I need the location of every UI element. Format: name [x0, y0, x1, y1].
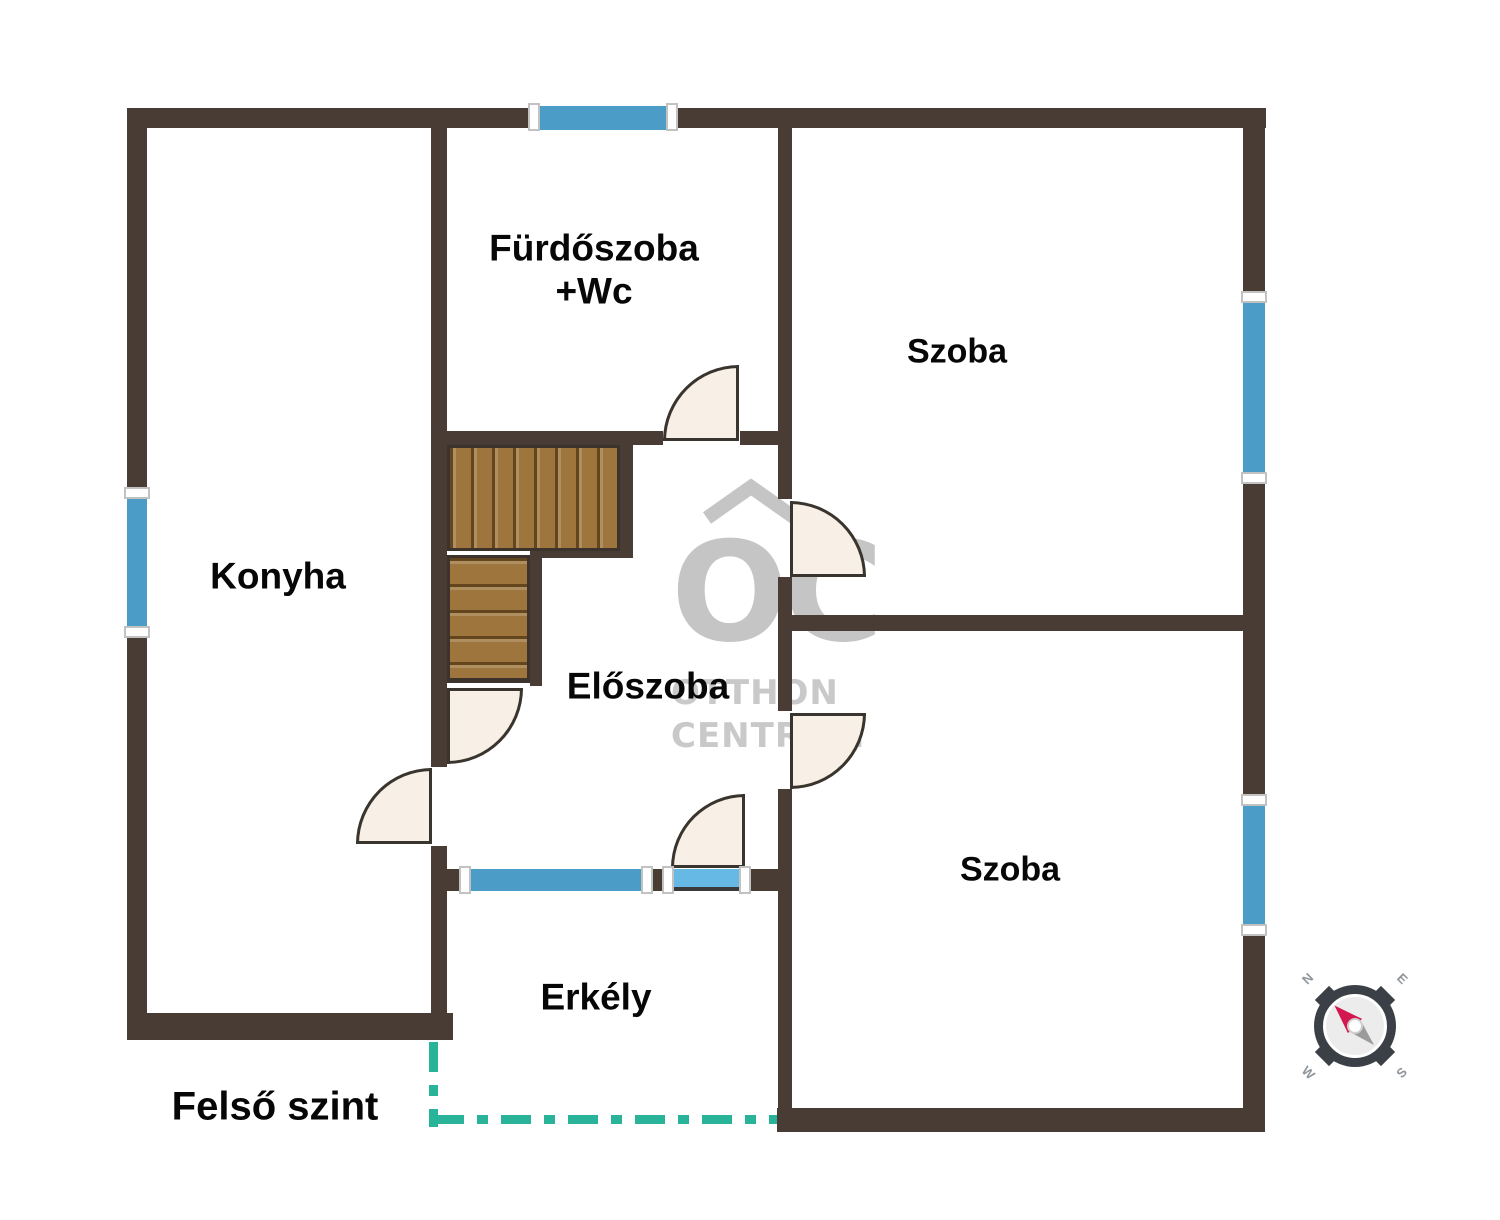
window-bracket	[662, 866, 674, 894]
balcony-dashed-outline-bottom	[434, 1115, 777, 1124]
stairs-upper-flight	[447, 445, 620, 551]
wall-hall-east-b	[778, 577, 792, 711]
door-stairs	[447, 688, 523, 764]
floor-plan: OC OTTHON CENTRUM	[0, 0, 1500, 1220]
compass-letter-e: E	[1391, 968, 1414, 991]
balcony-door-sill-line	[668, 887, 745, 891]
wall-stair-inner-h	[530, 550, 633, 558]
window-bracket	[124, 487, 150, 499]
room-label-room-top: Szoba	[907, 332, 1007, 371]
window-kitchen-left	[127, 493, 147, 630]
wall-hall-east-a	[778, 128, 792, 499]
door-kitchen	[356, 768, 432, 844]
window-bracket	[1241, 924, 1267, 936]
window-room-top-right	[1243, 297, 1265, 478]
room-label-bathroom-line2: +Wc	[489, 270, 699, 313]
window-bracket	[459, 866, 471, 894]
wall-outer-left-lower	[127, 630, 147, 1040]
window-bracket	[666, 103, 678, 131]
window-bracket	[1241, 291, 1267, 303]
room-label-room-bottom: Szoba	[960, 850, 1060, 889]
door-balcony	[671, 794, 745, 868]
room-label-bathroom-line1: Fürdőszoba	[489, 227, 699, 270]
window-bracket	[528, 103, 540, 131]
wall-outer-right-a	[1243, 128, 1265, 297]
stairs-lower-flight	[447, 555, 530, 683]
door-room-bottom	[790, 713, 866, 789]
wall-between-rooms	[792, 615, 1243, 631]
wall-outer-left-upper	[127, 128, 147, 493]
room-label-balcony: Erkély	[540, 977, 651, 1020]
compass-letter-w: W	[1297, 1062, 1320, 1085]
window-bracket	[1241, 472, 1267, 484]
wall-outer-right-c	[1243, 930, 1265, 1132]
window-bracket	[1241, 794, 1267, 806]
room-label-bathroom: Fürdőszoba +Wc	[489, 227, 699, 312]
wall-bathroom-south-east	[740, 431, 778, 445]
window-bracket	[739, 866, 751, 894]
wall-room-bottom-south	[777, 1108, 1265, 1132]
wall-stair-right	[620, 442, 633, 558]
window-bracket	[641, 866, 653, 894]
door-bathroom	[663, 365, 739, 441]
wall-stair-inner-v	[530, 558, 542, 686]
balcony-door-sill	[668, 869, 745, 887]
wall-kitchen-bottom	[127, 1013, 453, 1040]
room-label-hallway: Előszoba	[567, 666, 729, 709]
floor-title: Felső szint	[172, 1085, 379, 1130]
wall-hall-east-c	[778, 789, 792, 1132]
wall-outer-right-b	[1243, 478, 1265, 800]
compass-rose-icon: N E W S	[1295, 966, 1415, 1086]
window-bracket	[124, 626, 150, 638]
compass-letter-n: N	[1297, 968, 1320, 991]
window-room-bottom-right	[1243, 800, 1265, 930]
window-balcony	[465, 869, 647, 891]
window-bathroom-top	[538, 106, 672, 130]
room-label-kitchen: Konyha	[210, 556, 346, 599]
compass-letter-s: S	[1391, 1062, 1414, 1085]
wall-outer-top	[127, 108, 1266, 128]
wall-hall-west-upper	[431, 128, 447, 767]
